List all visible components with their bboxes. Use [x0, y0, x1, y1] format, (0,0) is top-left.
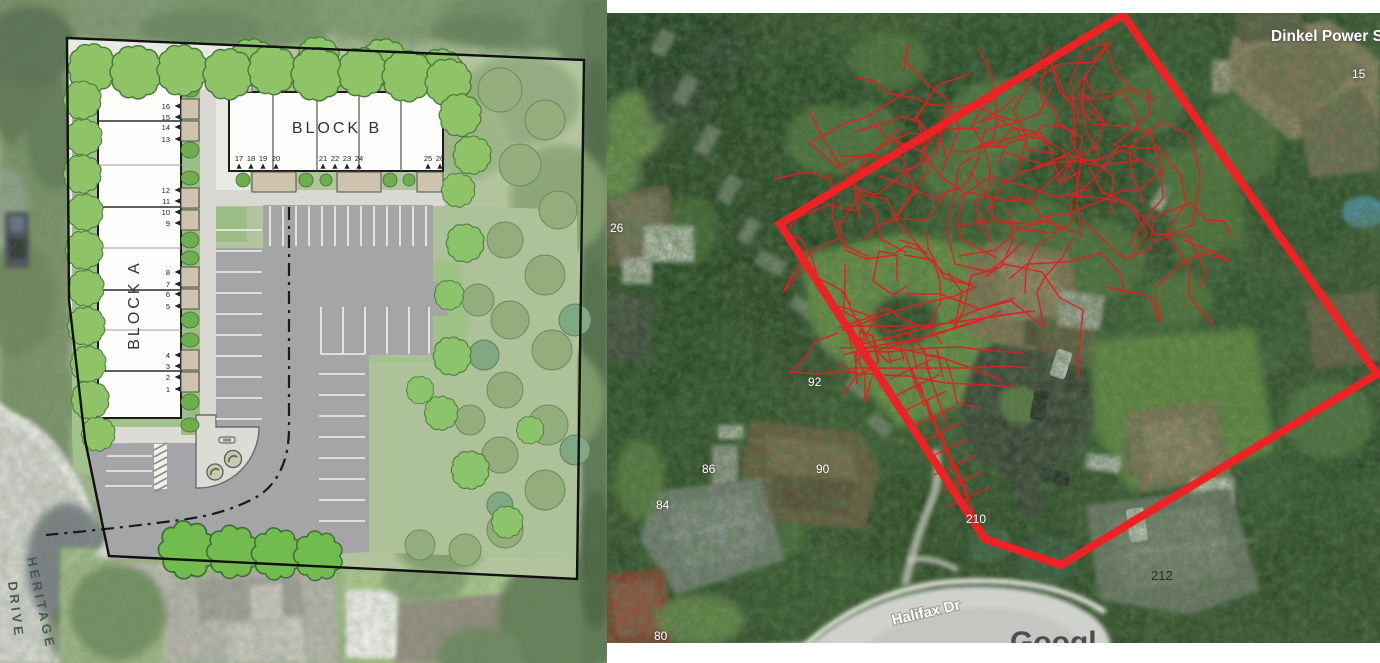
svg-text:9: 9 — [166, 219, 170, 228]
svg-text:11: 11 — [162, 197, 170, 206]
svg-text:Dinkel Power Ska: Dinkel Power Ska — [1271, 28, 1380, 45]
svg-text:13: 13 — [162, 135, 170, 144]
svg-text:84: 84 — [656, 498, 670, 512]
svg-text:19: 19 — [259, 154, 267, 163]
svg-text:80: 80 — [654, 629, 668, 643]
svg-text:15: 15 — [162, 113, 170, 122]
svg-text:23: 23 — [343, 154, 351, 163]
svg-text:BLOCK B: BLOCK B — [292, 120, 382, 137]
svg-text:92: 92 — [808, 375, 822, 389]
svg-text:16: 16 — [162, 102, 170, 111]
svg-text:5: 5 — [166, 302, 170, 311]
svg-text:17: 17 — [235, 154, 243, 163]
svg-text:3: 3 — [166, 362, 170, 371]
svg-text:BLOCK A: BLOCK A — [126, 260, 143, 349]
svg-text:14: 14 — [162, 123, 170, 132]
svg-text:15: 15 — [1352, 67, 1366, 81]
svg-text:12: 12 — [162, 186, 170, 195]
svg-text:210: 210 — [966, 512, 986, 526]
svg-text:90: 90 — [816, 462, 830, 476]
svg-text:26: 26 — [436, 154, 444, 163]
svg-text:86: 86 — [702, 462, 716, 476]
svg-text:6: 6 — [166, 290, 170, 299]
svg-text:20: 20 — [272, 154, 280, 163]
svg-text:22: 22 — [331, 154, 339, 163]
svg-text:2: 2 — [166, 373, 170, 382]
svg-text:26: 26 — [610, 221, 624, 235]
svg-text:1: 1 — [166, 385, 170, 394]
svg-text:4: 4 — [166, 351, 170, 360]
svg-text:18: 18 — [247, 154, 255, 163]
svg-text:24: 24 — [355, 154, 363, 163]
svg-text:212: 212 — [1151, 568, 1173, 583]
svg-text:10: 10 — [162, 208, 170, 217]
svg-text:25: 25 — [424, 154, 432, 163]
svg-text:8: 8 — [166, 268, 170, 277]
svg-text:21: 21 — [319, 154, 327, 163]
svg-text:7: 7 — [166, 280, 170, 289]
